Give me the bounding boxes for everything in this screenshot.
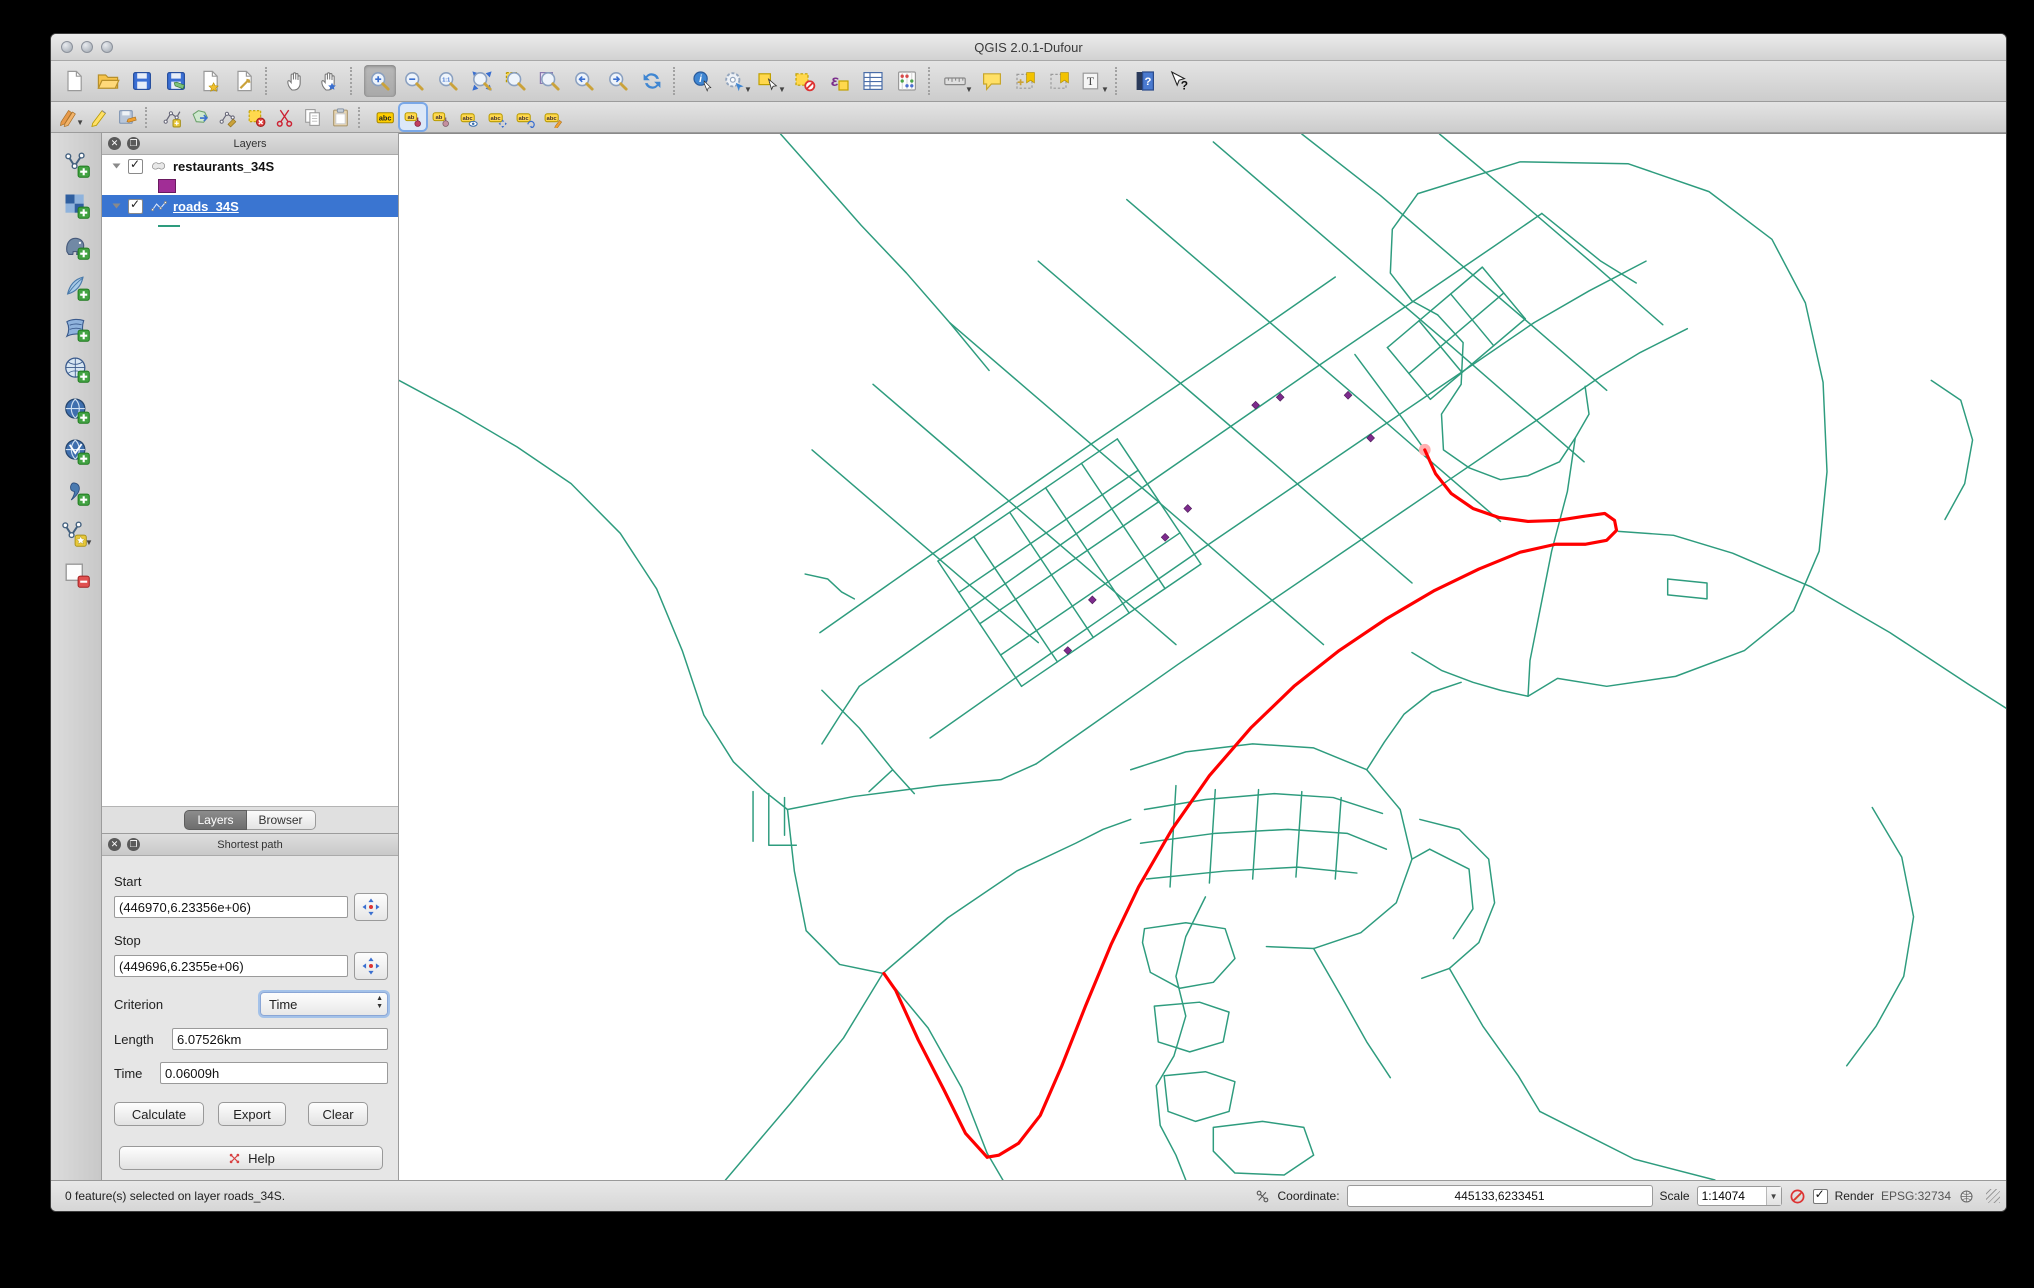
map-tips-button[interactable]	[976, 65, 1008, 97]
zoom-in-button[interactable]	[364, 65, 396, 97]
layers-panel: ✕ ❐ Layers restaurants_34Sroads_34S Laye…	[102, 133, 398, 833]
copy-features-icon	[302, 107, 323, 128]
new-print-composer-icon	[198, 69, 222, 93]
new-shapefile-layer-icon	[59, 519, 87, 547]
scale-label: Scale	[1660, 1189, 1690, 1203]
svg-text:i: i	[699, 74, 702, 85]
zoom-to-layer-icon	[538, 69, 562, 93]
identify-features-button[interactable]: i	[687, 65, 719, 97]
scale-combo[interactable]: ▼	[1697, 1186, 1782, 1206]
copy-features-button[interactable]	[299, 104, 325, 130]
svg-text:abc: abc	[378, 113, 391, 122]
add-oracle-layer-icon	[62, 355, 90, 383]
layer-visibility-checkbox[interactable]	[128, 159, 143, 174]
capture-stop-button[interactable]	[354, 952, 388, 980]
map-canvas[interactable]	[399, 133, 2006, 1180]
shortest-path-header: ✕ ❐ Shortest path	[102, 834, 398, 856]
svg-text:?: ?	[1145, 76, 1152, 88]
toolbar-separator	[673, 67, 682, 95]
new-project-button[interactable]	[58, 65, 90, 97]
open-attribute-table-icon	[861, 69, 885, 93]
render-checkbox[interactable]	[1813, 1189, 1828, 1204]
layer-symbology-row	[102, 217, 398, 235]
capture-point-icon	[361, 897, 381, 917]
deselect-features-icon	[793, 69, 817, 93]
layer-swatch	[158, 225, 180, 227]
coordinate-label: Coordinate:	[1278, 1189, 1340, 1203]
field-calculator-button[interactable]	[891, 65, 923, 97]
window-title: QGIS 2.0.1-Dufour	[51, 40, 2006, 55]
text-annotation-button[interactable]: T▼	[1078, 65, 1110, 97]
criterion-value: Time	[269, 997, 297, 1012]
add-oracle-layer-button[interactable]	[59, 352, 93, 386]
save-layer-edits-button[interactable]	[114, 104, 140, 130]
status-message: 0 feature(s) selected on layer roads_34S…	[65, 1189, 285, 1203]
toolbar-separator	[350, 67, 359, 95]
add-delimited-text-layer-button[interactable]	[59, 475, 93, 509]
line-layer-icon	[151, 200, 167, 213]
layer-label: roads_34S	[173, 199, 239, 214]
open-project-icon	[96, 69, 120, 93]
tab-browser[interactable]: Browser	[247, 810, 316, 830]
highlight-pinned-labels-icon: ab	[431, 107, 452, 128]
add-feature-icon	[162, 107, 183, 128]
delete-selected-icon	[246, 107, 267, 128]
pan-to-selection-icon	[317, 69, 341, 93]
composer-manager-icon	[232, 69, 256, 93]
add-mssql-layer-button[interactable]	[59, 311, 93, 345]
layers-panel-title: Layers	[102, 138, 398, 150]
pin-unpin-labels-button[interactable]: ab	[400, 104, 426, 130]
add-wfs-layer-icon	[62, 437, 90, 465]
select-features-icon	[756, 69, 780, 93]
node-tool-button[interactable]	[215, 104, 241, 130]
current-edits-button[interactable]: ▼	[58, 104, 84, 130]
desktop-background: QGIS 2.0.1-Dufour 1:1i▼▼ε▼T▼?? ▼abcababa…	[0, 0, 2034, 1288]
crs-globe-icon[interactable]	[1958, 1188, 1975, 1205]
remove-layer-icon	[62, 560, 90, 588]
pan-map-icon	[283, 69, 307, 93]
layer-symbology-row	[102, 177, 398, 195]
zoom-last-button[interactable]	[568, 65, 600, 97]
detach-panel-icon[interactable]: ❐	[127, 137, 140, 150]
labeling-icon: abc	[375, 107, 396, 128]
pin-unpin-labels-icon: ab	[403, 107, 424, 128]
zoom-out-icon	[402, 69, 426, 93]
zoom-to-selection-icon	[504, 69, 528, 93]
current-edits-icon	[58, 107, 78, 128]
expand-triangle-icon[interactable]	[113, 164, 121, 169]
left-dock-area: ✕ ❐ Layers restaurants_34Sroads_34S Laye…	[102, 133, 399, 1180]
layer-row-restaurants_34S[interactable]: restaurants_34S	[102, 155, 398, 177]
toggle-editing-button[interactable]	[86, 104, 112, 130]
zoom-full-button[interactable]	[466, 65, 498, 97]
save-project-button[interactable]	[126, 65, 158, 97]
chevron-down-icon[interactable]: ▼	[1766, 1187, 1781, 1205]
expand-triangle-icon[interactable]	[113, 204, 121, 209]
whats-this-button[interactable]: ?	[1163, 65, 1195, 97]
open-attribute-table-button[interactable]	[857, 65, 889, 97]
zoom-in-icon	[368, 69, 392, 93]
move-label-button[interactable]: abc	[484, 104, 510, 130]
svg-text:ab: ab	[407, 114, 414, 120]
svg-text:?: ?	[1181, 78, 1188, 92]
help-label: Help	[248, 1151, 275, 1166]
start-label: Start	[114, 874, 388, 889]
save-project-as-icon	[164, 69, 188, 93]
labeling-button[interactable]: abc	[372, 104, 398, 130]
help-contents-icon: ?	[1133, 69, 1157, 93]
layer-tree: restaurants_34Sroads_34S	[102, 155, 398, 806]
new-print-composer-button[interactable]	[194, 65, 226, 97]
clear-button[interactable]: Clear	[308, 1102, 368, 1126]
main-toolbar: 1:1i▼▼ε▼T▼??	[51, 61, 2006, 102]
identify-features-icon: i	[691, 69, 715, 93]
zoom-actual-size-button[interactable]: 1:1	[432, 65, 464, 97]
stop-label: Stop	[114, 933, 388, 948]
add-wfs-layer-button[interactable]	[59, 434, 93, 468]
chevron-down-icon[interactable]: ▼	[744, 85, 752, 97]
whats-this-icon: ?	[1167, 69, 1191, 93]
export-button[interactable]: Export	[218, 1102, 286, 1126]
zoom-actual-size-icon: 1:1	[436, 69, 460, 93]
zoom-last-icon	[572, 69, 596, 93]
toolbar-separator	[358, 107, 367, 128]
highlight-pinned-labels-button[interactable]: ab	[428, 104, 454, 130]
add-raster-layer-button[interactable]	[59, 188, 93, 222]
chevron-down-icon[interactable]: ▼	[1101, 85, 1109, 97]
cut-features-icon	[274, 107, 295, 128]
criterion-select[interactable]: Time ▲▼	[260, 992, 388, 1016]
help-plugin-icon	[227, 1151, 242, 1166]
save-project-as-button[interactable]	[160, 65, 192, 97]
shortest-path-title: Shortest path	[102, 839, 398, 851]
new-bookmark-icon	[1014, 69, 1038, 93]
save-project-icon	[130, 69, 154, 93]
paste-features-button[interactable]	[327, 104, 353, 130]
zoom-full-icon	[470, 69, 494, 93]
refresh-map-button[interactable]	[636, 65, 668, 97]
zoom-to-layer-button[interactable]	[534, 65, 566, 97]
paste-features-icon	[330, 107, 351, 128]
calculate-button[interactable]: Calculate	[114, 1102, 204, 1126]
toolbar-separator	[145, 107, 154, 128]
zoom-next-icon	[606, 69, 630, 93]
select-by-expression-icon: ε	[827, 69, 851, 93]
run-feature-action-button[interactable]: ▼	[721, 65, 753, 97]
help-contents-button[interactable]: ?	[1129, 65, 1161, 97]
resize-grip[interactable]	[1986, 1189, 2000, 1203]
refresh-map-icon	[640, 69, 664, 93]
help-button[interactable]: Help	[119, 1146, 383, 1170]
add-postgis-layer-button[interactable]	[59, 229, 93, 263]
change-label-properties-icon: abc	[543, 107, 564, 128]
capture-point-icon	[361, 956, 381, 976]
svg-text:ε: ε	[831, 73, 839, 90]
rotate-label-button[interactable]: abc	[512, 104, 538, 130]
chevron-down-icon[interactable]: ▼	[76, 118, 84, 130]
layer-label: restaurants_34S	[173, 159, 274, 174]
manage-layers-toolbar: ▼	[51, 133, 102, 1180]
pan-to-selection-button[interactable]	[313, 65, 345, 97]
layers-panel-header: ✕ ❐ Layers	[102, 133, 398, 155]
field-calculator-icon	[895, 69, 919, 93]
chevron-down-icon[interactable]: ▼	[85, 538, 93, 550]
close-panel-icon[interactable]: ✕	[108, 838, 121, 851]
polygon-layer-icon	[151, 160, 167, 173]
toolbar-separator	[265, 67, 274, 95]
stop-render-icon[interactable]	[1789, 1188, 1806, 1205]
move-feature-button[interactable]	[187, 104, 213, 130]
edit-label-toolbar: ▼abcabababcabcabcabc	[51, 102, 2006, 133]
cut-features-button[interactable]	[271, 104, 297, 130]
toolbar-separator	[928, 67, 937, 95]
add-wms-layer-button[interactable]	[59, 393, 93, 427]
add-vector-layer-icon	[62, 150, 90, 178]
status-bar: 0 feature(s) selected on layer roads_34S…	[51, 1180, 2006, 1211]
mouse-position-icon[interactable]	[1254, 1188, 1271, 1205]
show-bookmarks-icon	[1048, 69, 1072, 93]
add-raster-layer-icon	[62, 191, 90, 219]
layer-swatch	[158, 179, 176, 193]
add-vector-layer-button[interactable]	[59, 147, 93, 181]
chevron-down-icon[interactable]: ▼	[965, 85, 973, 97]
stepper-icon: ▲▼	[376, 995, 383, 1011]
layer-visibility-checkbox[interactable]	[128, 199, 143, 214]
new-shapefile-layer-button[interactable]: ▼	[59, 516, 93, 550]
measure-line-button[interactable]: ▼	[942, 65, 974, 97]
add-wms-layer-icon	[62, 396, 90, 424]
svg-text:abc: abc	[546, 115, 557, 121]
panel-tabs: Layers Browser	[102, 806, 398, 833]
toggle-editing-icon	[89, 107, 110, 128]
select-features-button[interactable]: ▼	[755, 65, 787, 97]
restaurant-point	[1088, 596, 1096, 604]
layer-row-roads_34S[interactable]: roads_34S	[102, 195, 398, 217]
map-tips-icon	[980, 69, 1004, 93]
zoom-next-button[interactable]	[602, 65, 634, 97]
chevron-down-icon[interactable]: ▼	[778, 85, 786, 97]
delete-selected-button[interactable]	[243, 104, 269, 130]
deselect-features-button[interactable]	[789, 65, 821, 97]
toolbar-separator	[1115, 67, 1124, 95]
tab-layers[interactable]: Layers	[184, 810, 246, 830]
length-output[interactable]	[172, 1028, 388, 1050]
rotate-label-icon: abc	[515, 107, 536, 128]
measure-line-icon	[943, 69, 967, 93]
scale-input[interactable]	[1698, 1188, 1766, 1204]
show-bookmarks-button[interactable]	[1044, 65, 1076, 97]
select-by-expression-button[interactable]: ε	[823, 65, 855, 97]
change-label-properties-button[interactable]: abc	[540, 104, 566, 130]
length-label: Length	[114, 1032, 164, 1047]
shortest-path-panel: ✕ ❐ Shortest path Start Stop	[102, 833, 398, 1180]
crs-status-label: EPSG:32734	[1881, 1189, 1951, 1203]
criterion-label: Criterion	[114, 997, 163, 1012]
close-panel-icon[interactable]: ✕	[108, 137, 121, 150]
svg-text:T: T	[1087, 74, 1095, 88]
coordinate-input[interactable]	[1347, 1185, 1653, 1207]
add-mssql-layer-icon	[62, 314, 90, 342]
svg-text:1:1: 1:1	[442, 77, 450, 83]
new-project-icon	[62, 69, 86, 93]
stop-input[interactable]	[114, 955, 348, 977]
move-feature-icon	[190, 107, 211, 128]
add-spatialite-layer-icon	[62, 273, 90, 301]
pan-map-button[interactable]	[279, 65, 311, 97]
open-project-button[interactable]	[92, 65, 124, 97]
text-annotation-icon: T	[1079, 69, 1103, 93]
node-tool-icon	[218, 107, 239, 128]
svg-text:abc: abc	[490, 115, 501, 121]
map-render	[399, 134, 2006, 1180]
restaurant-point	[1184, 505, 1192, 513]
svg-text:abc: abc	[518, 115, 529, 121]
svg-text:ab: ab	[435, 114, 442, 120]
add-postgis-layer-icon	[62, 232, 90, 260]
time-output[interactable]	[160, 1062, 388, 1084]
time-label: Time	[114, 1066, 152, 1081]
add-feature-button[interactable]	[159, 104, 185, 130]
remove-layer-button[interactable]	[59, 557, 93, 591]
qgis-window: QGIS 2.0.1-Dufour 1:1i▼▼ε▼T▼?? ▼abcababa…	[50, 33, 2007, 1212]
start-input[interactable]	[114, 896, 348, 918]
move-label-icon: abc	[487, 107, 508, 128]
zoom-out-button[interactable]	[398, 65, 430, 97]
roads-layer	[399, 134, 2006, 1180]
zoom-to-selection-button[interactable]	[500, 65, 532, 97]
add-delimited-text-layer-icon	[62, 478, 90, 506]
titlebar: QGIS 2.0.1-Dufour	[51, 34, 2006, 61]
restaurant-point	[1161, 533, 1169, 541]
detach-panel-icon[interactable]: ❐	[127, 838, 140, 851]
add-spatialite-layer-button[interactable]	[59, 270, 93, 304]
show-hide-labels-button[interactable]: abc	[456, 104, 482, 130]
run-feature-action-icon	[722, 69, 746, 93]
render-label: Render	[1835, 1189, 1874, 1203]
shortest-path-route	[884, 450, 1617, 1157]
composer-manager-button[interactable]	[228, 65, 260, 97]
capture-start-button[interactable]	[354, 893, 388, 921]
show-hide-labels-icon: abc	[459, 107, 480, 128]
save-layer-edits-icon	[117, 107, 138, 128]
new-bookmark-button[interactable]	[1010, 65, 1042, 97]
